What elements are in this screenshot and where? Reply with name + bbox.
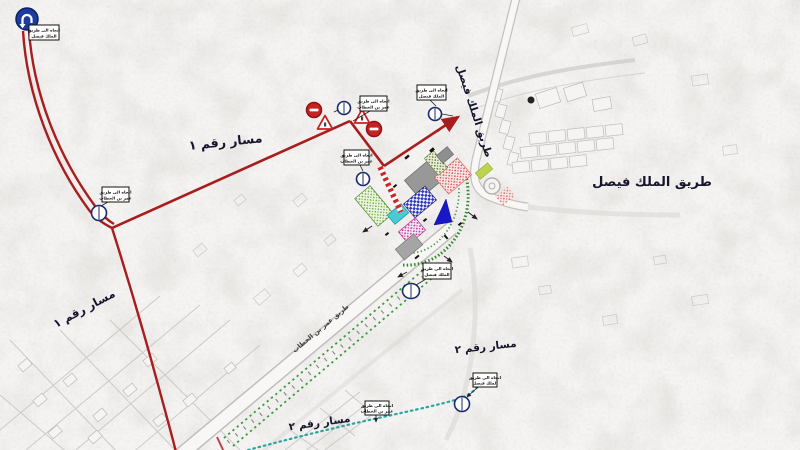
svg-text:اتجاه الى طريق: اتجاه الى طريق [361, 403, 394, 408]
detour-sign-peak [338, 102, 351, 115]
callout-route2-south: اتجاه الى طريق عمر بن الخطاب [361, 401, 394, 415]
map-point-dot [528, 97, 535, 104]
callout-bend: اتجاه الى طريق عمر بن الخطاب [99, 187, 132, 202]
detour-sign-south-site [403, 284, 420, 299]
svg-text:عمر بن الخطاب: عمر بن الخطاب [361, 409, 394, 414]
callout-south-site: اتجاه الى طريق الملك فيصل [421, 263, 454, 279]
roundabout [484, 178, 500, 194]
detour-sign-faisal [429, 108, 442, 121]
svg-text:اتجاه الى طريق: اتجاه الى طريق [421, 266, 454, 271]
detour-sign-bend [92, 206, 107, 221]
map-canvas: اتجاه الى طريق الملك فيصل اتجاه الى طريق… [0, 0, 800, 450]
svg-text:اتجاه الى طريق: اتجاه الى طريق [415, 88, 448, 93]
no-entry-sign-west [307, 103, 322, 118]
svg-text:عمر بن الخطاب: عمر بن الخطاب [99, 196, 132, 201]
callout-peak: اتجاه الى طريق عمر بن الخطاب [357, 96, 390, 111]
svg-text:اتجاه الى طريق: اتجاه الى طريق [340, 153, 373, 158]
svg-text:عمر بن الخطاب: عمر بن الخطاب [340, 159, 373, 164]
svg-text:عمر بن الخطاب: عمر بن الخطاب [357, 105, 390, 110]
roadworks-icon [324, 123, 326, 127]
svg-text:الملك فيصل: الملك فيصل [472, 381, 498, 386]
svg-text:اتجاه الى طريق: اتجاه الى طريق [28, 28, 61, 33]
svg-text:الملك فيصل: الملك فيصل [31, 34, 57, 39]
diversion-map: اتجاه الى طريق الملك فيصل اتجاه الى طريق… [0, 0, 800, 450]
callout-route2-east: اتجاه الى طريق الملك فيصل [469, 373, 502, 387]
svg-text:اتجاه الى طريق: اتجاه الى طريق [469, 375, 502, 380]
no-entry-bar-icon [310, 109, 319, 112]
callout-junction: اتجاه الى طريق عمر بن الخطاب [340, 150, 373, 165]
svg-text:الملك فيصل: الملك فيصل [419, 94, 445, 99]
callout-faisal: اتجاه الى طريق الملك فيصل [415, 85, 448, 100]
detour-sign-route2 [455, 397, 470, 412]
detour-sign-junction [357, 173, 370, 186]
svg-text:الملك فيصل: الملك فيصل [424, 272, 450, 277]
svg-text:اتجاه الى طريق: اتجاه الى طريق [99, 190, 132, 195]
svg-text:اتجاه الى طريق: اتجاه الى طريق [357, 99, 390, 104]
callout-start: اتجاه الى طريق الملك فيصل [28, 25, 61, 40]
king-faisal-label: طريق الملك فيصل [592, 175, 712, 190]
